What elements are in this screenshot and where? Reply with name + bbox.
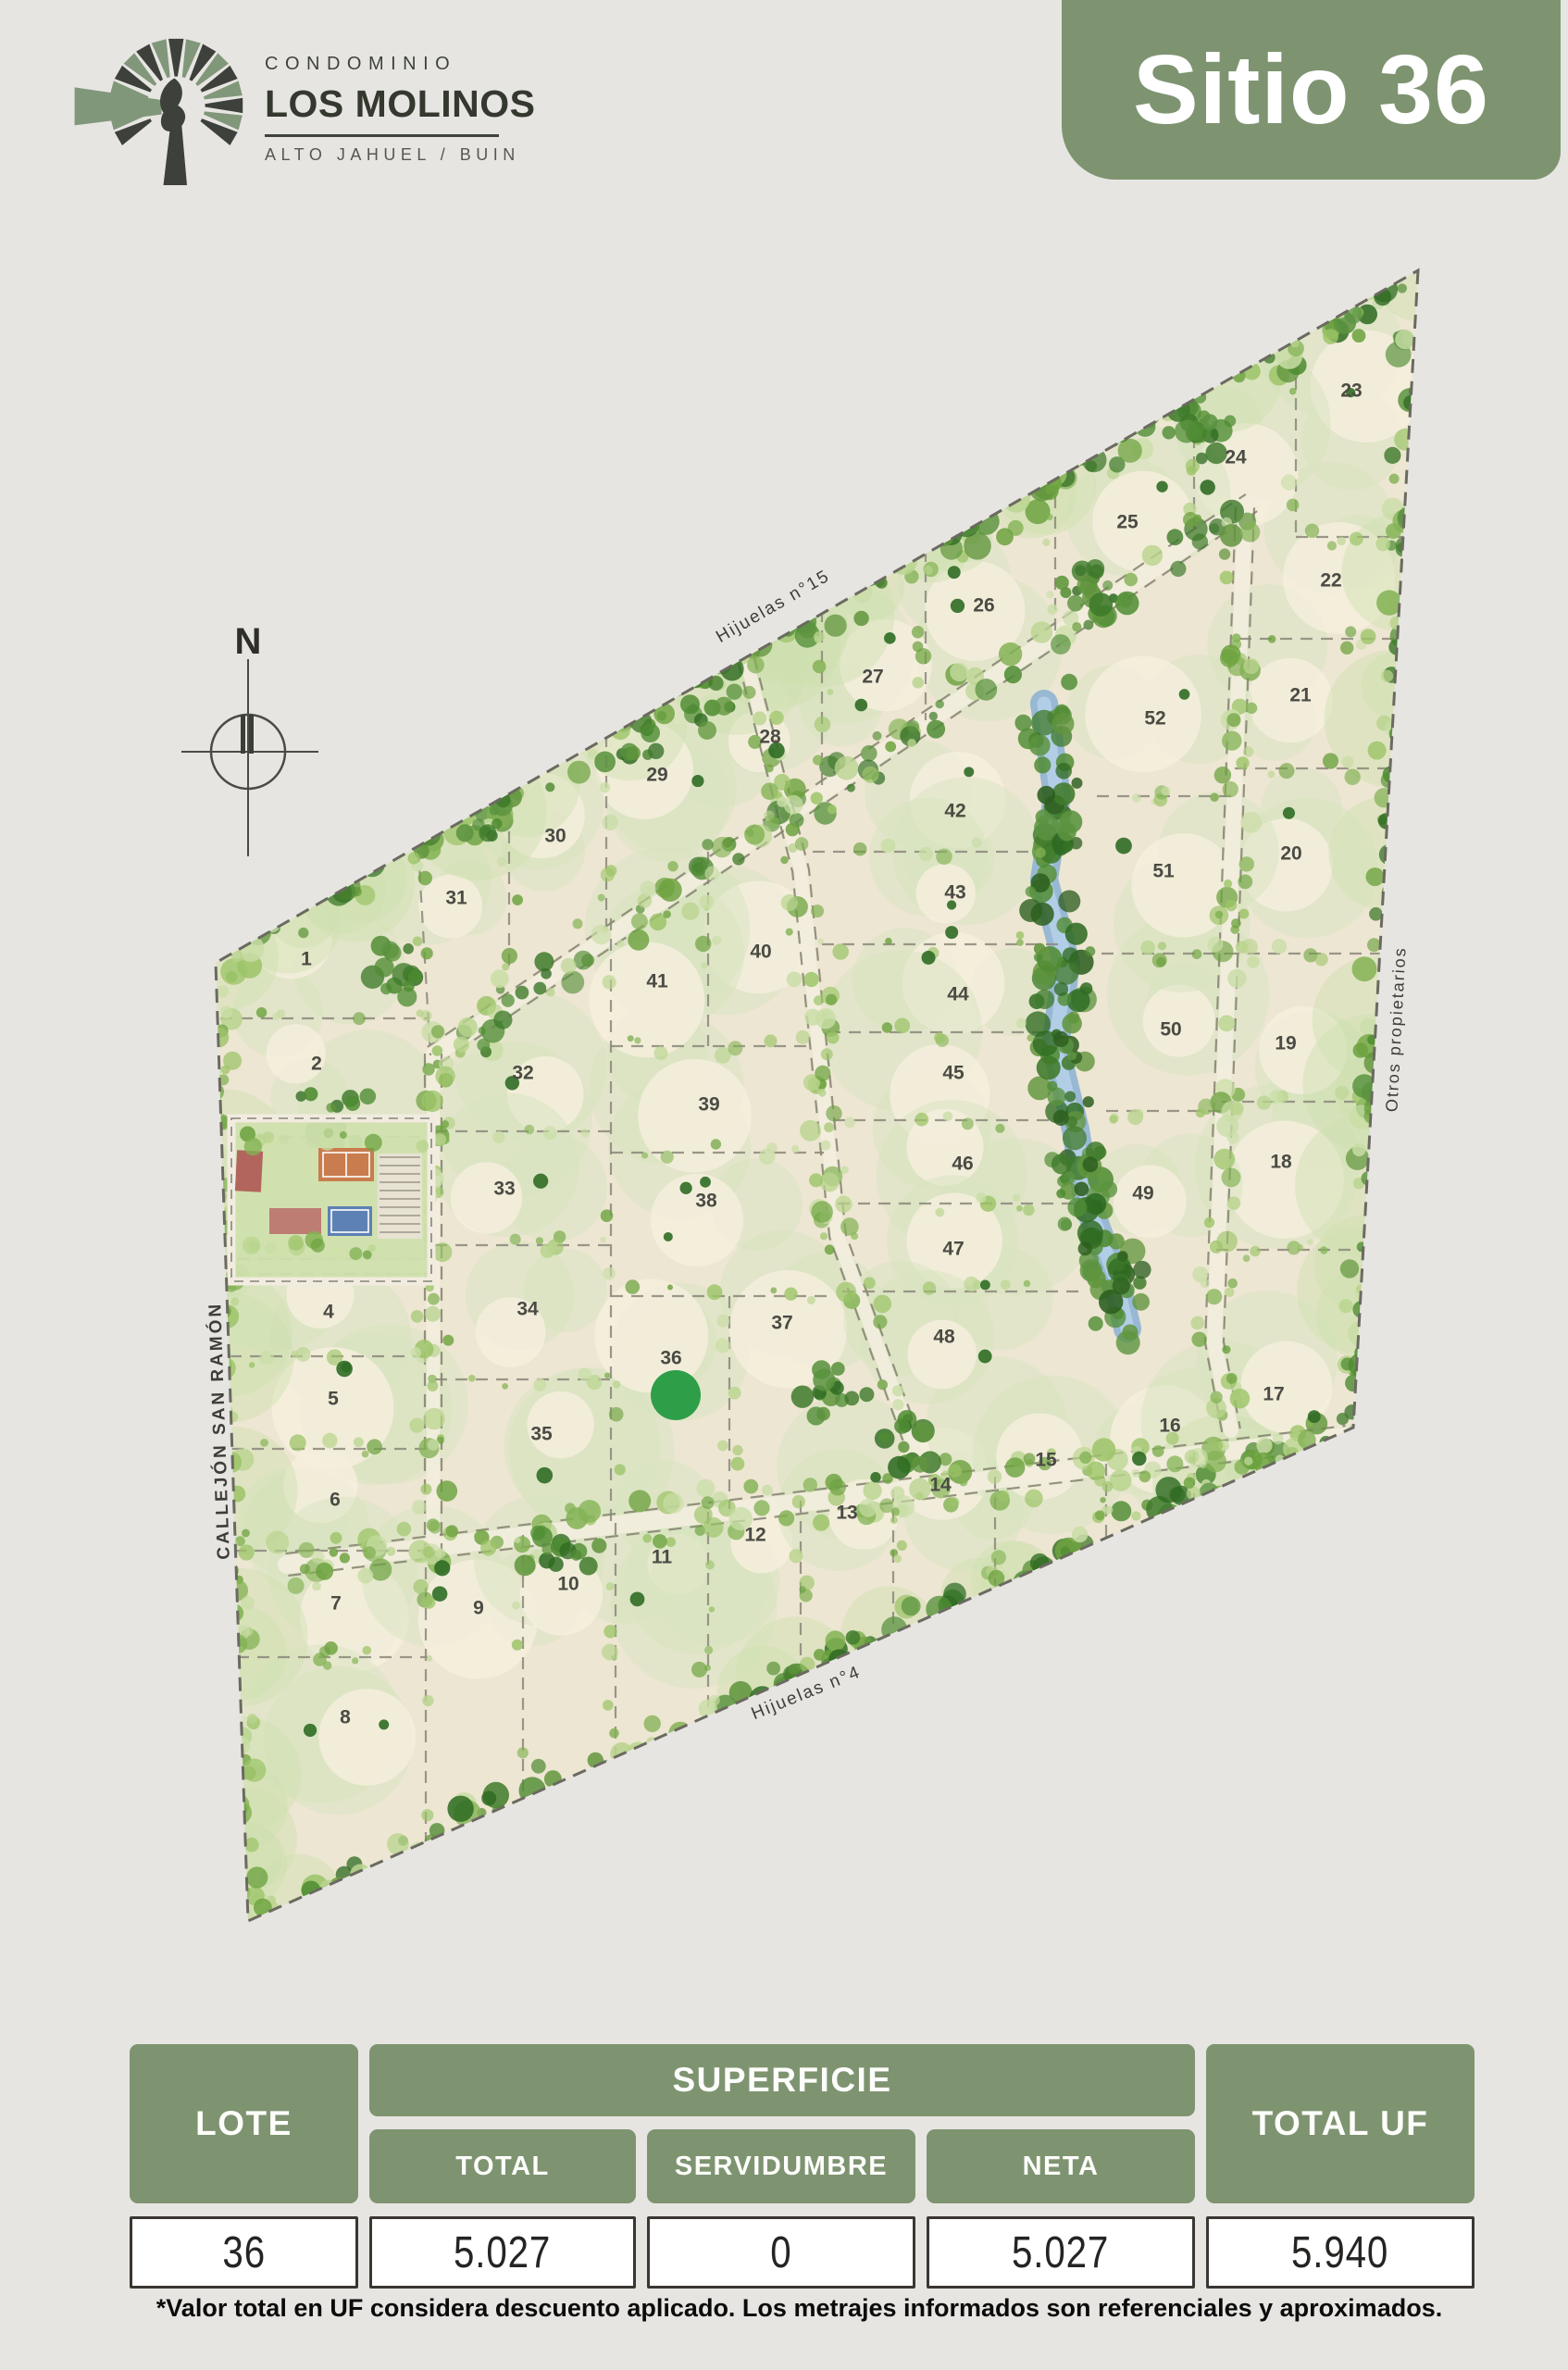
table-value-total-uf: 5.940 bbox=[1206, 2216, 1475, 2289]
lot-summary-table: LOTE SUPERFICIE TOTAL SERVIDUMBRE NETA T… bbox=[130, 2044, 1475, 2289]
lot-label-30: 30 bbox=[544, 826, 566, 847]
table-value-neta: 5.027 bbox=[927, 2216, 1195, 2289]
lot-label-34: 34 bbox=[516, 1299, 539, 1320]
lot-label-5: 5 bbox=[328, 1389, 339, 1410]
lot-label-27: 27 bbox=[862, 667, 883, 688]
lot-label-18: 18 bbox=[1270, 1152, 1292, 1173]
lot-label-40: 40 bbox=[750, 942, 771, 963]
lot-label-1: 1 bbox=[301, 949, 312, 970]
lot-label-15: 15 bbox=[1035, 1450, 1057, 1471]
lot-label-17: 17 bbox=[1263, 1384, 1284, 1405]
lot-label-49: 49 bbox=[1132, 1183, 1153, 1204]
lot-label-16: 16 bbox=[1159, 1416, 1180, 1437]
lot-label-45: 45 bbox=[942, 1063, 964, 1084]
lot-label-10: 10 bbox=[557, 1574, 579, 1595]
highlight-lot-36-marker bbox=[651, 1370, 701, 1420]
lot-label-25: 25 bbox=[1116, 512, 1139, 533]
lot-label-31: 31 bbox=[445, 888, 467, 909]
site-map: 1245678910111213141516171819202122232425… bbox=[0, 0, 1568, 2370]
lot-label-52: 52 bbox=[1144, 708, 1165, 730]
lot-label-47: 47 bbox=[942, 1239, 964, 1260]
lot-label-44: 44 bbox=[947, 984, 969, 1005]
lot-label-6: 6 bbox=[330, 1490, 341, 1511]
facilities-area bbox=[231, 1118, 431, 1281]
footnote: *Valor total en UF considera descuento a… bbox=[130, 2294, 1469, 2323]
lot-label-39: 39 bbox=[698, 1094, 719, 1116]
lot-label-19: 19 bbox=[1275, 1033, 1296, 1054]
lot-label-41: 41 bbox=[646, 971, 668, 992]
lot-label-28: 28 bbox=[759, 727, 781, 748]
compass-north-label: N bbox=[235, 621, 262, 662]
lot-label-46: 46 bbox=[952, 1154, 973, 1175]
lot-label-4: 4 bbox=[323, 1302, 334, 1323]
lot-label-20: 20 bbox=[1280, 843, 1301, 865]
lot-label-37: 37 bbox=[771, 1313, 792, 1334]
lot-label-33: 33 bbox=[493, 1179, 515, 1200]
lot-label-11: 11 bbox=[652, 1547, 673, 1568]
lot-label-24: 24 bbox=[1225, 447, 1247, 468]
table-header-total-uf: TOTAL UF bbox=[1206, 2044, 1475, 2203]
lot-label-35: 35 bbox=[530, 1424, 553, 1445]
lot-label-14: 14 bbox=[929, 1475, 952, 1496]
lot-label-8: 8 bbox=[340, 1707, 351, 1728]
lot-label-13: 13 bbox=[836, 1503, 857, 1524]
table-header-neta: NETA bbox=[927, 2129, 1195, 2203]
lot-label-26: 26 bbox=[973, 595, 994, 617]
table-value-lote: 36 bbox=[130, 2216, 358, 2289]
lot-label-7: 7 bbox=[330, 1593, 342, 1615]
north-compass: N bbox=[181, 621, 318, 856]
street-label-otros-propietarios: Otros propietarios bbox=[1382, 946, 1409, 1113]
lot-label-9: 9 bbox=[473, 1598, 484, 1619]
lot-label-51: 51 bbox=[1152, 861, 1175, 882]
lot-label-21: 21 bbox=[1289, 685, 1312, 706]
lot-label-29: 29 bbox=[646, 765, 667, 786]
table-header-servidumbre: SERVIDUMBRE bbox=[647, 2129, 915, 2203]
lot-label-50: 50 bbox=[1160, 1019, 1181, 1041]
table-header-total: TOTAL bbox=[369, 2129, 636, 2203]
flyer-page: CONDOMINIO LOS MOLINOS ALTO JAHUEL / BUI… bbox=[0, 0, 1568, 2370]
table-value-servidumbre: 0 bbox=[647, 2216, 915, 2289]
lot-label-23: 23 bbox=[1340, 380, 1362, 402]
lot-label-42: 42 bbox=[944, 801, 965, 822]
lot-label-38: 38 bbox=[695, 1191, 717, 1212]
lot-label-32: 32 bbox=[512, 1063, 533, 1084]
lot-label-12: 12 bbox=[744, 1525, 765, 1546]
lot-label-43: 43 bbox=[944, 882, 965, 904]
lot-label-2: 2 bbox=[311, 1054, 322, 1075]
lot-label-48: 48 bbox=[933, 1327, 955, 1348]
lot-label-36: 36 bbox=[660, 1348, 681, 1369]
table-value-total: 5.027 bbox=[369, 2216, 636, 2289]
lot-label-22: 22 bbox=[1320, 570, 1341, 592]
table-header-lote: LOTE bbox=[130, 2044, 358, 2203]
table-header-superficie: SUPERFICIE bbox=[369, 2044, 1195, 2116]
